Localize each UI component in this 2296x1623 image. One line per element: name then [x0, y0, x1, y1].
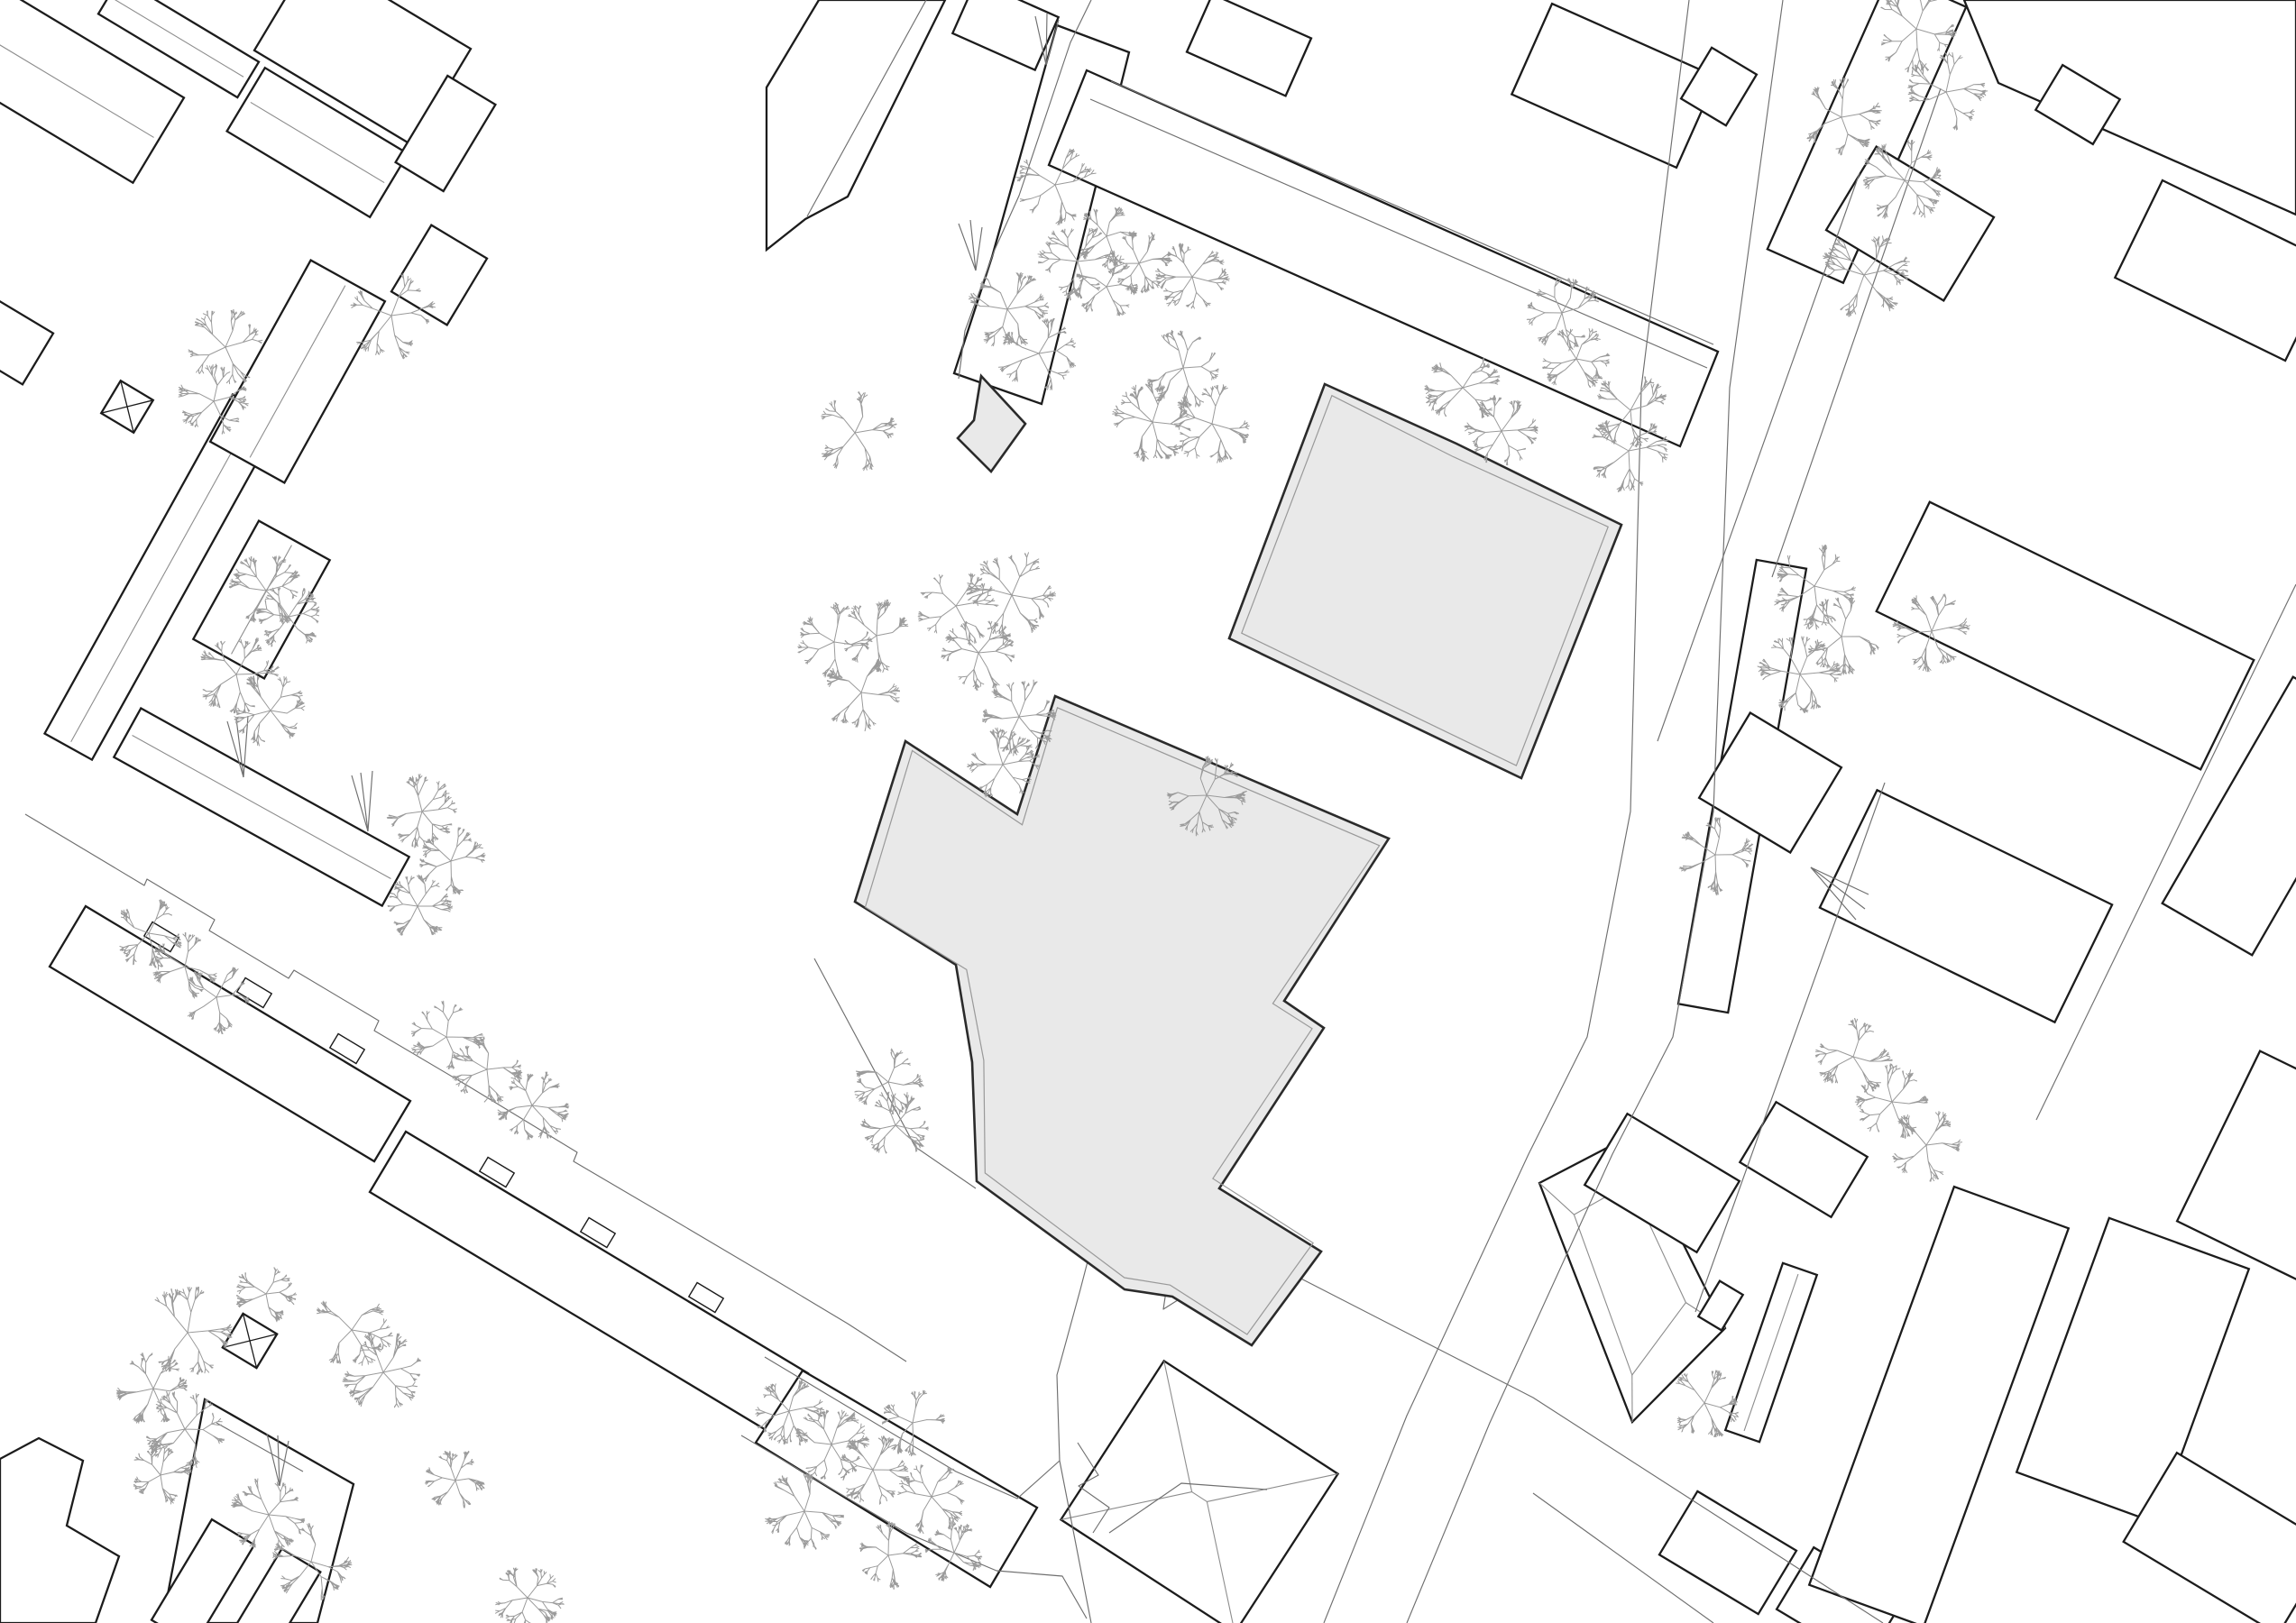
site-plan-viewport: [0, 0, 2296, 1623]
site-plan-canvas: [0, 0, 2296, 1623]
